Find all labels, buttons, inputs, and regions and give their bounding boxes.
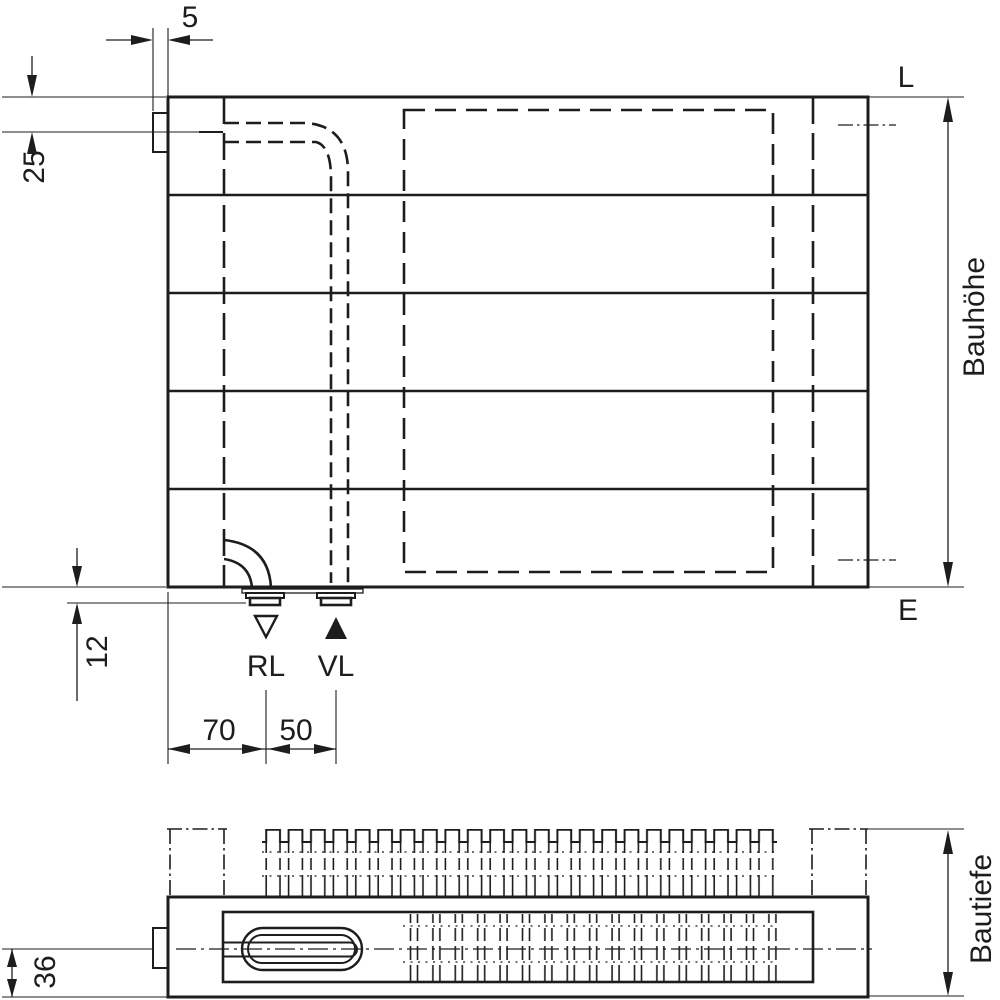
dim-bauhoehe: L E Bauhöhe xyxy=(868,61,991,627)
supply-pipe-inner-wall xyxy=(224,142,331,583)
rl-nipple xyxy=(246,593,284,605)
dim-36-label: 36 xyxy=(29,955,62,988)
drawing-svg: RL VL 5 25 12 xyxy=(0,0,1000,1000)
bautiefe-label: Bautiefe xyxy=(965,854,998,964)
dim-center-to-front: 36 xyxy=(7,949,62,997)
return-flow-icon xyxy=(255,616,277,637)
radiator-body-outline xyxy=(168,97,868,587)
front-view-dimensions: 5 25 12 70 50 xyxy=(2,1,991,764)
centerline-extensions xyxy=(2,949,168,997)
wall-bracket-tab-plan xyxy=(153,928,168,968)
dim-25-label: 25 xyxy=(18,150,51,183)
supply-flow-icon xyxy=(325,617,347,639)
channel-hidden-lines xyxy=(224,97,813,587)
ref-l-label: L xyxy=(898,61,915,94)
vl-label: VL xyxy=(318,650,355,683)
ref-e-label: E xyxy=(898,594,918,627)
supply-pipe-outer-wall xyxy=(224,123,348,583)
return-bend-inner-wall xyxy=(224,559,252,588)
vl-nipple xyxy=(317,593,355,605)
bauhoehe-label: Bauhöhe xyxy=(958,257,991,377)
convector-dashed-rect xyxy=(404,110,773,572)
dim-bautiefe: Bautiefe xyxy=(868,829,998,996)
left-bracket-phantom xyxy=(167,829,227,896)
dim-70-label: 70 xyxy=(202,714,235,747)
dim-12-label: 12 xyxy=(81,635,114,668)
front-view: RL VL xyxy=(153,97,896,683)
rl-label: RL xyxy=(247,650,285,683)
radiator-dimension-drawing: RL VL 5 25 12 xyxy=(0,0,1000,1000)
dim-5-label: 5 xyxy=(182,1,199,34)
inner-fins xyxy=(403,914,777,981)
dim-bottom-to-connector: 12 xyxy=(2,548,246,701)
top-fins xyxy=(262,829,777,897)
return-bend-outer-wall xyxy=(224,540,271,588)
top-view xyxy=(2,829,872,997)
dim-50-label: 50 xyxy=(279,714,312,747)
panel-band-lines xyxy=(168,195,868,489)
dim-bracket-width: 5 xyxy=(106,1,213,111)
right-bracket-phantom xyxy=(809,829,868,896)
